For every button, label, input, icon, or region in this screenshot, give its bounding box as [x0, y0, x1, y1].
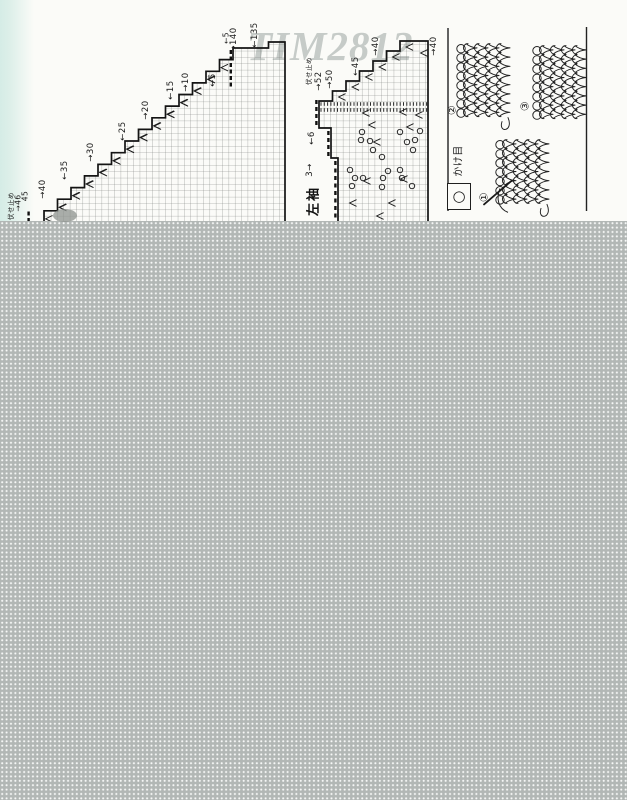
sleeve-chart-outline [319, 41, 428, 224]
scanned-knitting-pattern-page: TIM2812 伏せ止め→4645→40←35→30←25→20←15→10←5… [0, 0, 627, 800]
row-count-label: →10 [181, 72, 191, 91]
stitch-illustration-3 [533, 46, 586, 120]
stitch-illustration-2 [457, 44, 510, 130]
scan-shadow-blob [53, 209, 77, 222]
left-knitting-chart [27, 42, 285, 224]
row-count-label: 3→ [305, 163, 315, 177]
gray-scan-area [0, 221, 627, 800]
row-count-label: ←25 [118, 121, 128, 140]
row-count-label: ←35 [60, 160, 70, 179]
row-count-label: ←5 [208, 73, 218, 87]
yarnover-symbol: ○ [452, 189, 465, 204]
row-count-label: ←15 [166, 80, 176, 99]
row-count-label: →40 [38, 179, 48, 198]
sleeve-name-label: 左袖 [303, 186, 322, 216]
row-number-label: →50 [325, 69, 335, 88]
figure-number-3: ③ [519, 101, 532, 111]
row-number-label: →140 [229, 27, 239, 52]
row-number-label: ←135 [250, 22, 260, 47]
figure-number-2: ② [446, 105, 459, 115]
row-number-label: →40 [371, 36, 381, 55]
legend-label: かけ目 [450, 145, 465, 177]
legend-yarnover-box: ○ [447, 183, 471, 210]
row-count-label: →30 [86, 142, 96, 161]
bind-off-label: 45 [21, 191, 30, 202]
stitch-illustration-1 [484, 140, 549, 217]
left-chart-outline [31, 42, 286, 224]
figure-number-1: ① [478, 192, 491, 202]
row-number-label: →40 [429, 36, 439, 55]
row-number-label: 伏せ止め [303, 57, 313, 85]
row-number-label: ←45 [351, 56, 361, 75]
row-number-label: →52 [314, 71, 324, 90]
row-count-label: →20 [141, 100, 151, 119]
row-count-label: ←6 [307, 131, 317, 145]
